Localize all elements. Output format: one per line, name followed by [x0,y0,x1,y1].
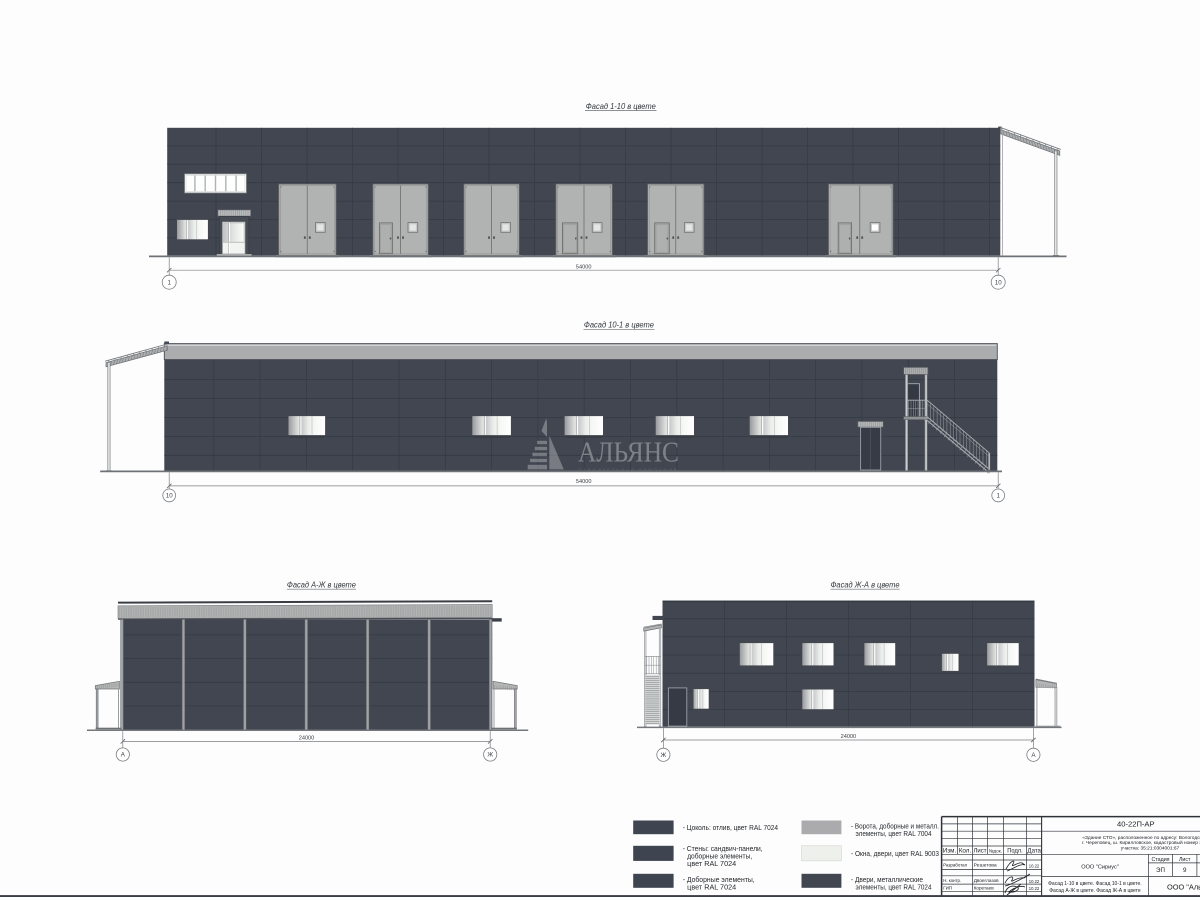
svg-text:ООО "Альянс": ООО "Альянс" [1167,883,1200,892]
svg-text:Фасад Ж-А в цвете: Фасад Ж-А в цвете [831,581,900,590]
svg-text:Стадия: Стадия [1151,857,1169,863]
svg-text:г. Череповец, ш. Кирилловское,: г. Череповец, ш. Кирилловское, кадастров… [1082,839,1200,846]
svg-text:цвет RAL 7024: цвет RAL 7024 [687,860,736,868]
svg-text:«Здание СТО», расположенное по: «Здание СТО», расположенное по адресу: В… [1082,835,1200,841]
svg-text:участка: 35:21:0304001:67: участка: 35:21:0304001:67 [1121,845,1180,851]
svg-text:№док.: №док. [989,849,1002,854]
svg-text:Фасад А-Ж в цвете. Фасад Ж-А в: Фасад А-Ж в цвете. Фасад Ж-А в цвете [1049,888,1141,894]
svg-text:10: 10 [995,279,1002,286]
svg-text:Решетова: Решетова [974,863,997,869]
svg-text:10.22: 10.22 [1029,863,1040,869]
svg-text:Кол.: Кол. [959,848,972,854]
svg-text:ГИП: ГИП [943,886,952,892]
svg-text:10.22: 10.22 [1029,879,1040,885]
svg-text:Дата: Дата [1027,848,1041,854]
svg-text:элементы, цвет RAL 7024: элементы, цвет RAL 7024 [856,884,932,892]
svg-text:Фасад 10-1 в цвете: Фасад 10-1 в цвете [584,321,654,330]
svg-text:Ж: Ж [487,752,493,759]
svg-text:- Цоколь: отлив, цвет RAL 7024: - Цоколь: отлив, цвет RAL 7024 [683,824,778,832]
svg-text:- Окна, двери, цвет RAL 9003: - Окна, двери, цвет RAL 9003 [851,850,939,858]
svg-text:Двоеглазов: Двоеглазов [974,878,999,884]
svg-text:цвет RAL 7024: цвет RAL 7024 [687,884,736,892]
svg-text:Подл.: Подл. [1007,848,1023,854]
svg-text:Фасад 1-10 в цвете: Фасад 1-10 в цвете [586,102,656,111]
svg-text:24000: 24000 [841,734,857,740]
svg-text:40-22П-АР: 40-22П-АР [1117,819,1155,828]
svg-text:9: 9 [1183,867,1187,874]
svg-text:54000: 54000 [576,265,592,271]
svg-text:1: 1 [996,493,1000,500]
svg-text:10.22: 10.22 [1029,886,1040,892]
svg-text:Н. контр.: Н. контр. [943,878,961,884]
svg-text:Лист: Лист [974,848,987,854]
svg-text:Коретаев: Коретаев [974,886,994,892]
svg-text:Изм.: Изм. [943,848,957,854]
svg-text:элементы, цвет RAL 7004: элементы, цвет RAL 7004 [856,830,932,838]
svg-text:1: 1 [167,279,171,286]
svg-text:ООО "Сириус": ООО "Сириус" [1081,865,1119,871]
svg-text:Лист: Лист [1179,857,1191,863]
svg-text:54000: 54000 [576,479,592,485]
svg-text:Разработал: Разработал [943,863,967,869]
svg-text:ЭП: ЭП [1156,867,1165,874]
svg-text:Фасад А-Ж в цвете: Фасад А-Ж в цвете [287,581,356,590]
svg-text:24000: 24000 [299,735,315,741]
svg-text:АЛЬЯНС: АЛЬЯНС [578,438,679,469]
svg-text:Фасад 1-10 в цвете. Фасад 10-1: Фасад 1-10 в цвете. Фасад 10-1 в цвете. [1048,881,1142,887]
svg-text:10: 10 [166,493,173,500]
svg-text:Ж: Ж [661,752,667,759]
